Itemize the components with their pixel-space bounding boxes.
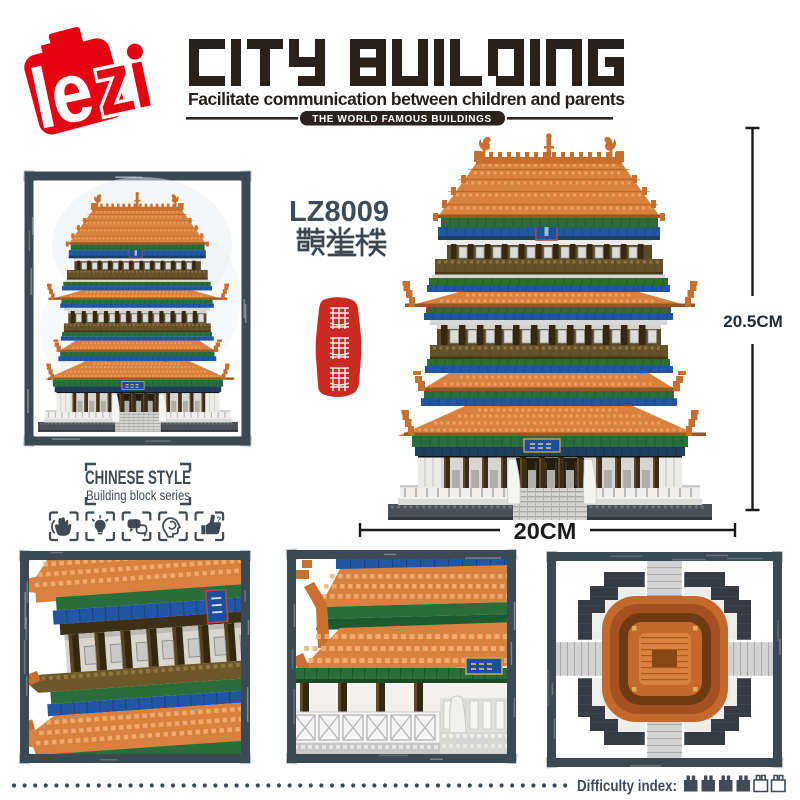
svg-text:20CM: 20CM — [514, 518, 577, 544]
svg-text:Facilitate communication betwe: Facilitate communication between childre… — [188, 89, 625, 109]
svg-text:LZ8009: LZ8009 — [289, 196, 389, 228]
svg-text:20.5CM: 20.5CM — [723, 312, 783, 331]
svg-text:Building block series: Building block series — [86, 487, 190, 503]
svg-text:CHINESE STYLE: CHINESE STYLE — [85, 468, 191, 489]
svg-text:THE WORLD FAMOUS BUILDINGS: THE WORLD FAMOUS BUILDINGS — [312, 114, 491, 125]
svg-text:?: ? — [216, 515, 221, 524]
svg-text:Difficulty index:: Difficulty index: — [577, 778, 677, 795]
